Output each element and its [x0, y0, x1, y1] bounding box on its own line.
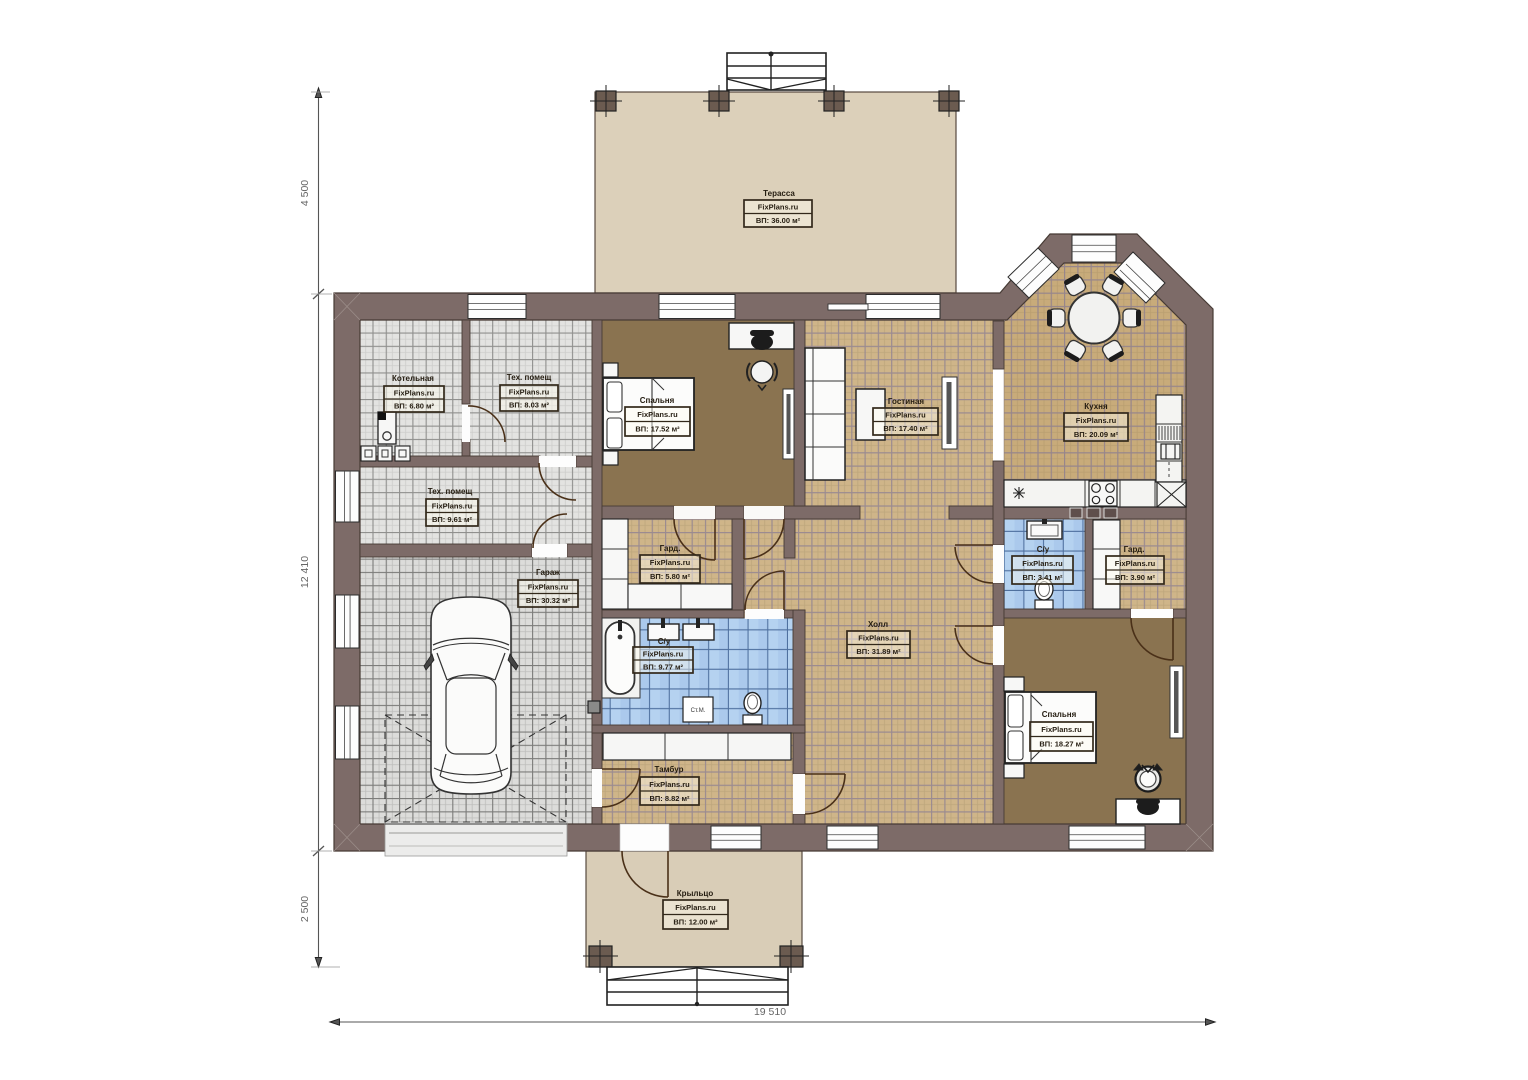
svg-text:С/у: С/у: [658, 637, 671, 646]
svg-text:Тамбур: Тамбур: [654, 765, 683, 774]
svg-text:FixPlans.ru: FixPlans.ru: [650, 558, 691, 567]
svg-text:ВП: 6.80 м²: ВП: 6.80 м²: [394, 401, 435, 410]
svg-text:ВП: 20.09 м²: ВП: 20.09 м²: [1074, 430, 1119, 439]
svg-text:FixPlans.ru: FixPlans.ru: [1022, 559, 1063, 568]
svg-text:Гостиная: Гостиная: [888, 397, 924, 406]
svg-text:Кухня: Кухня: [1084, 402, 1108, 411]
svg-text:ВП: 9.61 м²: ВП: 9.61 м²: [432, 515, 473, 524]
svg-text:Котельная: Котельная: [392, 374, 434, 383]
svg-text:Крыльцо: Крыльцо: [677, 889, 714, 898]
svg-text:FixPlans.ru: FixPlans.ru: [394, 388, 435, 397]
svg-text:2 500: 2 500: [299, 896, 311, 922]
svg-text:ВП: 5.80 м²: ВП: 5.80 м²: [650, 572, 691, 581]
svg-text:ВП: 3.41 м²: ВП: 3.41 м²: [1022, 573, 1063, 582]
svg-text:ВП: 8.03 м²: ВП: 8.03 м²: [509, 400, 550, 409]
svg-text:FixPlans.ru: FixPlans.ru: [758, 203, 799, 212]
svg-text:ВП: 8.82 м²: ВП: 8.82 м²: [649, 794, 690, 803]
svg-text:Гард.: Гард.: [1124, 545, 1145, 554]
svg-text:ВП: 12.00 м²: ВП: 12.00 м²: [673, 918, 718, 927]
svg-text:FixPlans.ru: FixPlans.ru: [637, 410, 678, 419]
svg-text:ВП: 9.77 м²: ВП: 9.77 м²: [643, 662, 684, 671]
svg-text:FixPlans.ru: FixPlans.ru: [649, 780, 690, 789]
svg-text:Гараж: Гараж: [536, 568, 560, 577]
svg-text:FixPlans.ru: FixPlans.ru: [528, 583, 569, 592]
svg-text:ВП: 31.89 м²: ВП: 31.89 м²: [856, 647, 901, 656]
svg-text:Спальня: Спальня: [1042, 710, 1077, 719]
svg-text:ВП: 30.32 м²: ВП: 30.32 м²: [526, 596, 571, 605]
svg-text:Холл: Холл: [868, 620, 888, 629]
svg-text:Терасса: Терасса: [763, 189, 795, 198]
svg-text:19 510: 19 510: [754, 1006, 786, 1018]
svg-text:Тех. помещ: Тех. помещ: [428, 487, 473, 496]
svg-text:ВП: 17.52 м²: ВП: 17.52 м²: [635, 425, 680, 434]
svg-text:FixPlans.ru: FixPlans.ru: [675, 903, 716, 912]
svg-text:FixPlans.ru: FixPlans.ru: [1115, 559, 1156, 568]
svg-text:ВП: 36.00 м²: ВП: 36.00 м²: [756, 216, 801, 225]
svg-text:Гард.: Гард.: [660, 544, 681, 553]
svg-text:12 410: 12 410: [299, 556, 311, 588]
svg-text:Ст.М.: Ст.М.: [691, 708, 706, 714]
svg-text:FixPlans.ru: FixPlans.ru: [1041, 725, 1082, 734]
svg-text:FixPlans.ru: FixPlans.ru: [885, 411, 926, 420]
svg-text:С/у: С/у: [1037, 545, 1050, 554]
svg-text:FixPlans.ru: FixPlans.ru: [432, 502, 473, 511]
svg-text:FixPlans.ru: FixPlans.ru: [1076, 416, 1117, 425]
svg-text:Тех. помещ: Тех. помещ: [507, 373, 552, 382]
svg-text:4 500: 4 500: [299, 180, 311, 206]
svg-text:FixPlans.ru: FixPlans.ru: [643, 649, 684, 658]
svg-text:ВП: 17.40 м²: ВП: 17.40 м²: [883, 424, 928, 433]
svg-text:FixPlans.ru: FixPlans.ru: [858, 634, 899, 643]
svg-text:Спальня: Спальня: [640, 396, 675, 405]
svg-text:ВП: 18.27 м²: ВП: 18.27 м²: [1039, 740, 1084, 749]
svg-text:ВП: 3.90 м²: ВП: 3.90 м²: [1115, 573, 1156, 582]
svg-text:FixPlans.ru: FixPlans.ru: [509, 387, 550, 396]
